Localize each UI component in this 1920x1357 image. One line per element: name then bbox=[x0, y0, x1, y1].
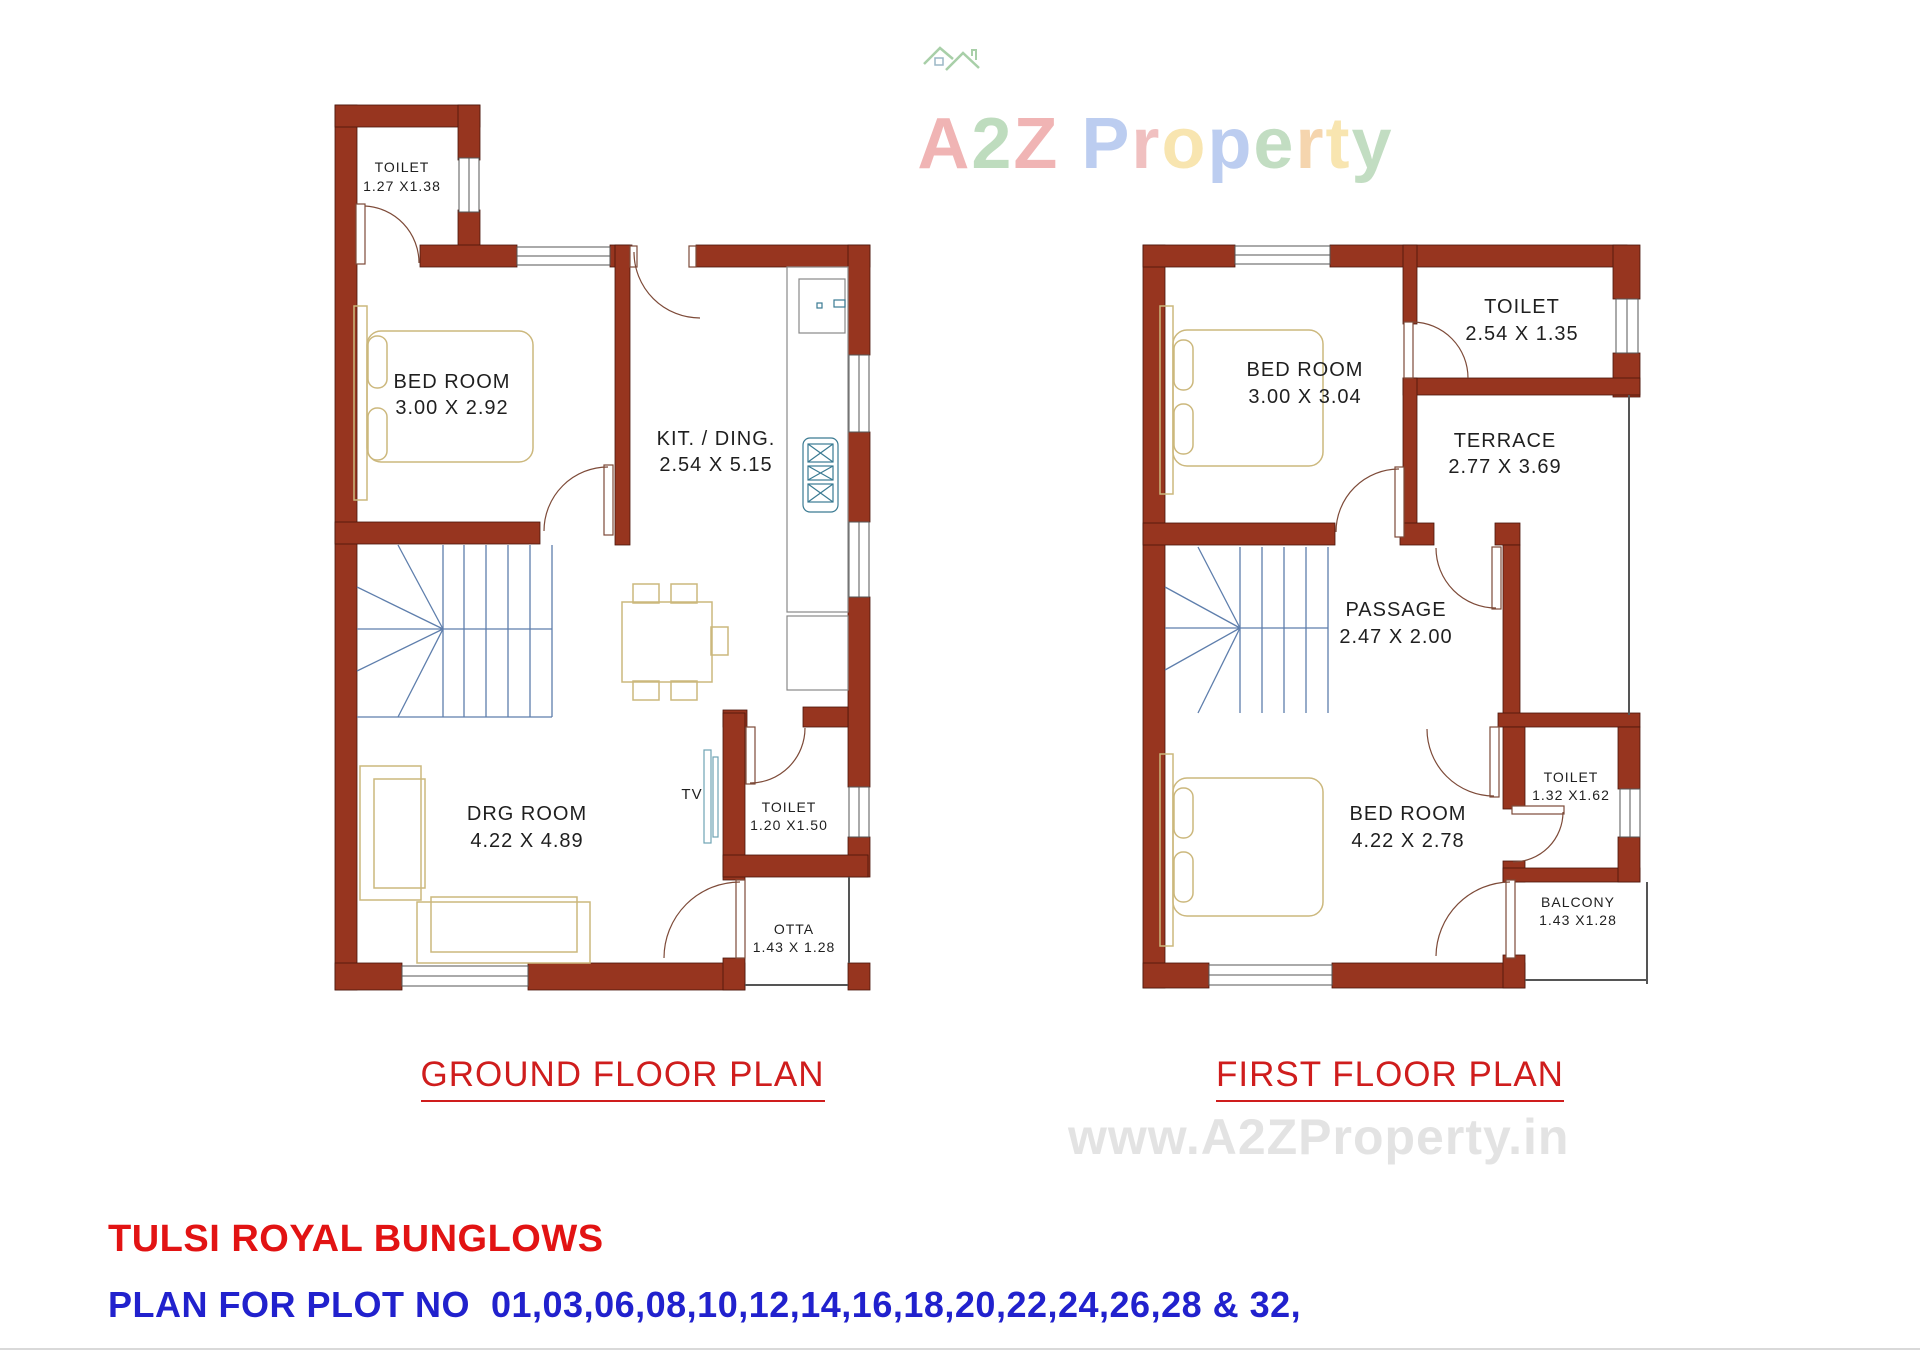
room-dims: 1.43 X1.28 bbox=[1539, 912, 1617, 928]
first-floor-caption: FIRST FLOOR PLAN bbox=[1140, 1055, 1640, 1102]
ff-stairs bbox=[1165, 547, 1328, 713]
room-dims: 2.47 X 2.00 bbox=[1339, 626, 1452, 648]
room-label: DRG ROOM bbox=[467, 803, 587, 825]
gf-stairs bbox=[357, 545, 552, 717]
logo-letter: r bbox=[1131, 104, 1161, 184]
room-label: TOILET bbox=[375, 159, 430, 175]
bottom-divider bbox=[0, 1348, 1920, 1350]
logo-letter: e bbox=[1253, 104, 1295, 184]
ground-floor-caption: GROUND FLOOR PLAN bbox=[350, 1055, 895, 1102]
first-floor-plan: BED ROOM 3.00 X 3.04 TOILET 2.54 X 1.35 … bbox=[1135, 240, 1655, 1000]
logo-houses-icon bbox=[920, 40, 986, 80]
logo-letter bbox=[1059, 104, 1081, 184]
room-dims: 2.77 X 3.69 bbox=[1448, 456, 1561, 478]
room-dims: 2.54 X 5.15 bbox=[659, 454, 772, 476]
logo-letter: p bbox=[1207, 104, 1253, 184]
room-dims: 2.54 X 1.35 bbox=[1465, 323, 1578, 345]
room-dims: 1.32 X1.62 bbox=[1532, 787, 1610, 803]
room-label: KIT. / DING. bbox=[657, 428, 776, 450]
logo-letter: A bbox=[917, 104, 971, 184]
room-dims: 4.22 X 4.89 bbox=[470, 830, 583, 852]
logo-letter: t bbox=[1326, 104, 1352, 184]
room-label: BALCONY bbox=[1541, 894, 1615, 910]
watermark: www.A2ZProperty.in bbox=[1068, 1108, 1569, 1166]
room-dims: 3.00 X 2.92 bbox=[395, 397, 508, 419]
logo-letter: P bbox=[1081, 104, 1131, 184]
room-label: TERRACE bbox=[1454, 430, 1557, 452]
room-label: BED ROOM bbox=[394, 371, 511, 393]
room-dims: 4.22 X 2.78 bbox=[1351, 830, 1464, 852]
logo-letter: Z bbox=[1013, 104, 1059, 184]
logo-letter: r bbox=[1295, 104, 1325, 184]
gf-kitchen-fixtures bbox=[787, 267, 848, 690]
room-dims: 1.27 X1.38 bbox=[363, 178, 441, 194]
room-label: BED ROOM bbox=[1350, 803, 1467, 825]
gf-walls bbox=[335, 105, 870, 990]
room-label: OTTA bbox=[774, 921, 814, 937]
room-label: TOILET bbox=[1484, 296, 1560, 318]
logo-letter: o bbox=[1161, 104, 1207, 184]
project-title: TULSI ROYAL BUNGLOWS bbox=[108, 1218, 604, 1261]
logo-letter: y bbox=[1351, 104, 1393, 184]
ground-floor-plan: TOILET 1.27 X1.38 BED ROOM 3.00 X 2.92 K… bbox=[330, 95, 875, 1000]
room-label: PASSAGE bbox=[1345, 599, 1446, 621]
room-label: TOILET bbox=[762, 799, 817, 815]
gf-tv bbox=[704, 750, 718, 843]
gf-room-labels: TOILET 1.27 X1.38 BED ROOM 3.00 X 2.92 K… bbox=[363, 159, 835, 955]
room-label: TOILET bbox=[1544, 769, 1599, 785]
tv-label: TV bbox=[681, 786, 702, 803]
room-dims: 3.00 X 3.04 bbox=[1248, 386, 1361, 408]
plot-numbers-line: PLAN FOR PLOT NO 01,03,06,08,10,12,14,16… bbox=[108, 1284, 1301, 1326]
room-dims: 1.20 X1.50 bbox=[750, 817, 828, 833]
logo-letter: 2 bbox=[971, 104, 1013, 184]
room-dims: 1.43 X 1.28 bbox=[753, 939, 836, 955]
room-label: BED ROOM bbox=[1247, 359, 1364, 381]
